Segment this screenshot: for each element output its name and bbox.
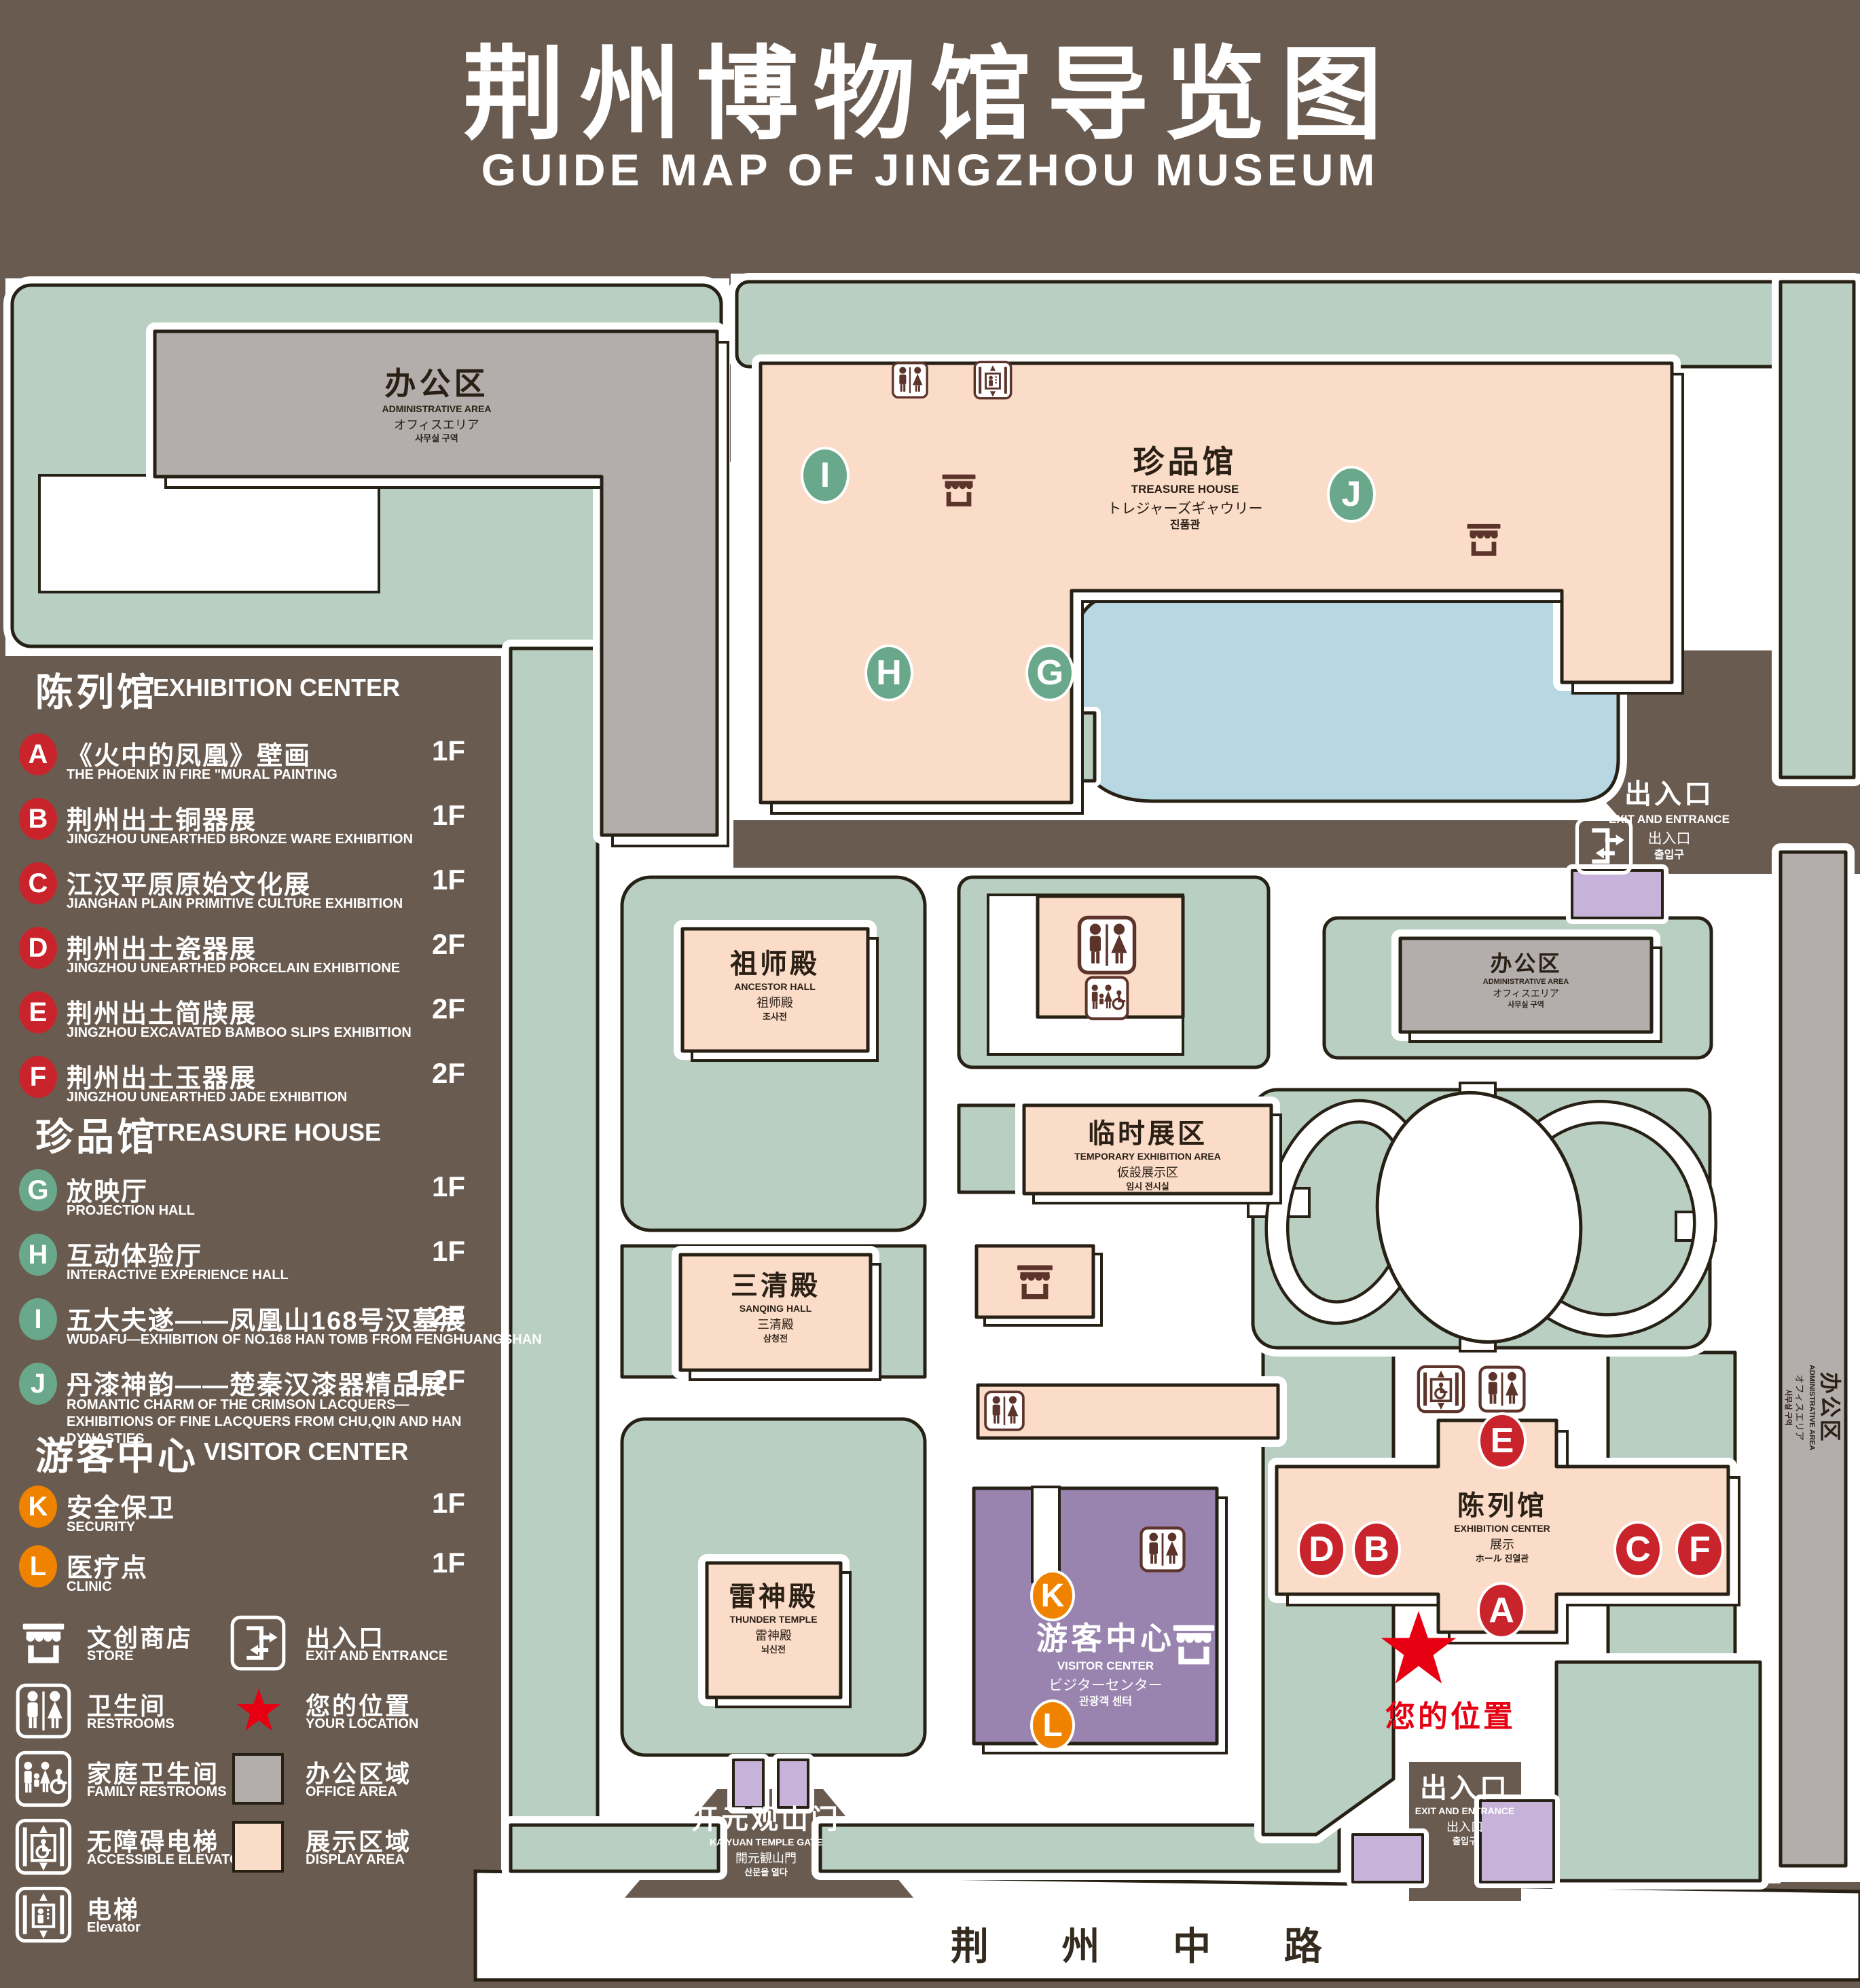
map-marker-B: B [1352, 1521, 1401, 1578]
map-marker-I: I [801, 447, 850, 504]
restroom-icon [983, 1390, 1025, 1432]
legend-badge-F: F [19, 1056, 57, 1098]
legend-section-visitor-center-zh: 游客中心 [35, 1426, 198, 1481]
accessible-elevator-icon [1417, 1365, 1465, 1414]
family-restroom-icon [1084, 976, 1129, 1020]
map-marker-H: H [864, 644, 913, 701]
location-star-icon [235, 1687, 282, 1734]
map-marker-K: K [1030, 1570, 1075, 1621]
restroom-icon [1478, 1365, 1527, 1414]
map-marker-F: F [1675, 1521, 1724, 1578]
legend-badge-B: B [19, 798, 57, 840]
legend-badge-A: A [19, 733, 57, 775]
label-your-location: 您的位置 [1385, 1692, 1516, 1735]
legend-badge-K: K [19, 1486, 57, 1528]
family-restroom-icon [15, 1750, 72, 1807]
legend-badge-J: J [19, 1363, 57, 1405]
map-marker-A: A [1477, 1582, 1526, 1639]
legend-section-visitor-center-en: VISITOR CENTER [204, 1437, 408, 1466]
legend-section-treasure-house-zh: 珍品馆 [35, 1107, 158, 1162]
restroom-icon [1076, 915, 1137, 976]
legend-badge-I: I [19, 1298, 57, 1340]
page-subtitle: GUIDE MAP OF JINGZHOU MUSEUM [0, 144, 1860, 196]
legend-badge-C: C [19, 862, 57, 904]
label-sanqing-hall: 三清殿 SANQING HALL 三清殿 삼청전 [674, 1271, 877, 1344]
legend-badge-L: L [19, 1545, 57, 1587]
store-icon [936, 467, 982, 513]
legend-section-exhibition-center-zh: 陈列馆 [35, 662, 158, 717]
label-ancestor-hall: 祖师殿 ANCESTOR HALL 祖师殿 조사전 [673, 949, 877, 1022]
label-admin-strip: 办公区 ADMINISTRATIVE AREA オフィスエリア 사무실 구역 [1784, 1306, 1842, 1509]
store-icon [1461, 517, 1507, 563]
map-marker-J: J [1327, 466, 1376, 523]
store-icon [15, 1615, 72, 1672]
label-exhibition-center: 陈列馆 EXHIBITION CENTER 展示 ホール 진열관 [1400, 1491, 1604, 1564]
label-exit-ne: 出入口 EXIT AND ENTRANCE 出入口 출입구 [1567, 779, 1771, 862]
map-marker-E: E [1478, 1412, 1527, 1469]
label-road: 荆 州 中 路 [951, 1916, 1353, 1971]
label-kaiyuan-gate: 开元观山门 KAIYUAN TEMPLE GATE 開元観山門 산문을 열다 [651, 1805, 881, 1877]
label-temporary-exhibition: 临时展区 TEMPORARY EXHIBITION AREA 仮設展示区 임시 … [1029, 1119, 1266, 1192]
label-visitor-center: 游客中心 VISITOR CENTER ビジターセンター 관광객 센터 [987, 1621, 1224, 1708]
office-area-swatch [232, 1753, 284, 1805]
elevator-icon [973, 361, 1013, 400]
map-marker-D: D [1297, 1521, 1346, 1578]
store-icon [1010, 1257, 1059, 1306]
page-title: 荆州博物馆导览图 [0, 12, 1860, 160]
restroom-icon [1139, 1526, 1186, 1573]
legend-section-treasure-house-en: TREASURE HOUSE [153, 1118, 381, 1147]
exit-icon [230, 1615, 287, 1672]
guide-map-poster: 荆州博物馆导览图 GUIDE MAP OF JINGZHOU MUSEUM 办公… [0, 0, 1860, 1988]
admin-nw-courtyard [39, 475, 379, 592]
label-exit-s: 出入口 EXIT AND ENTRANCE 出入口 출입구 [1373, 1773, 1556, 1846]
map-marker-C: C [1613, 1521, 1662, 1578]
label-treasure-house: 珍品馆 TREASURE HOUSE トレジャーズギャウリー 진품관 [1049, 445, 1321, 532]
legend-badge-H: H [19, 1234, 57, 1276]
legend-badge-G: G [19, 1169, 57, 1211]
legend-badge-D: D [19, 927, 57, 969]
label-admin-e: 办公区 ADMINISTRATIVE AREA オフィスエリア 사무실 구역 [1424, 952, 1628, 1009]
label-admin-nw: 办公区 ADMINISTRATIVE AREA オフィスエリア 사무실 구역 [301, 367, 572, 444]
legend-badge-E: E [19, 991, 57, 1033]
restroom-icon [891, 361, 929, 399]
display-area-swatch [232, 1821, 284, 1873]
map-marker-L: L [1030, 1699, 1075, 1751]
your-location-star-icon [1378, 1608, 1459, 1689]
elevator-icon [15, 1886, 72, 1943]
legend-section-exhibition-center-en: EXHIBITION CENTER [153, 674, 400, 702]
map-marker-G: G [1025, 644, 1074, 701]
restroom-icon [15, 1682, 72, 1739]
label-thunder-temple: 雷神殿 THUNDER TEMPLE 雷神殿 뇌신전 [672, 1582, 875, 1655]
accessible-elevator-icon [15, 1818, 72, 1875]
